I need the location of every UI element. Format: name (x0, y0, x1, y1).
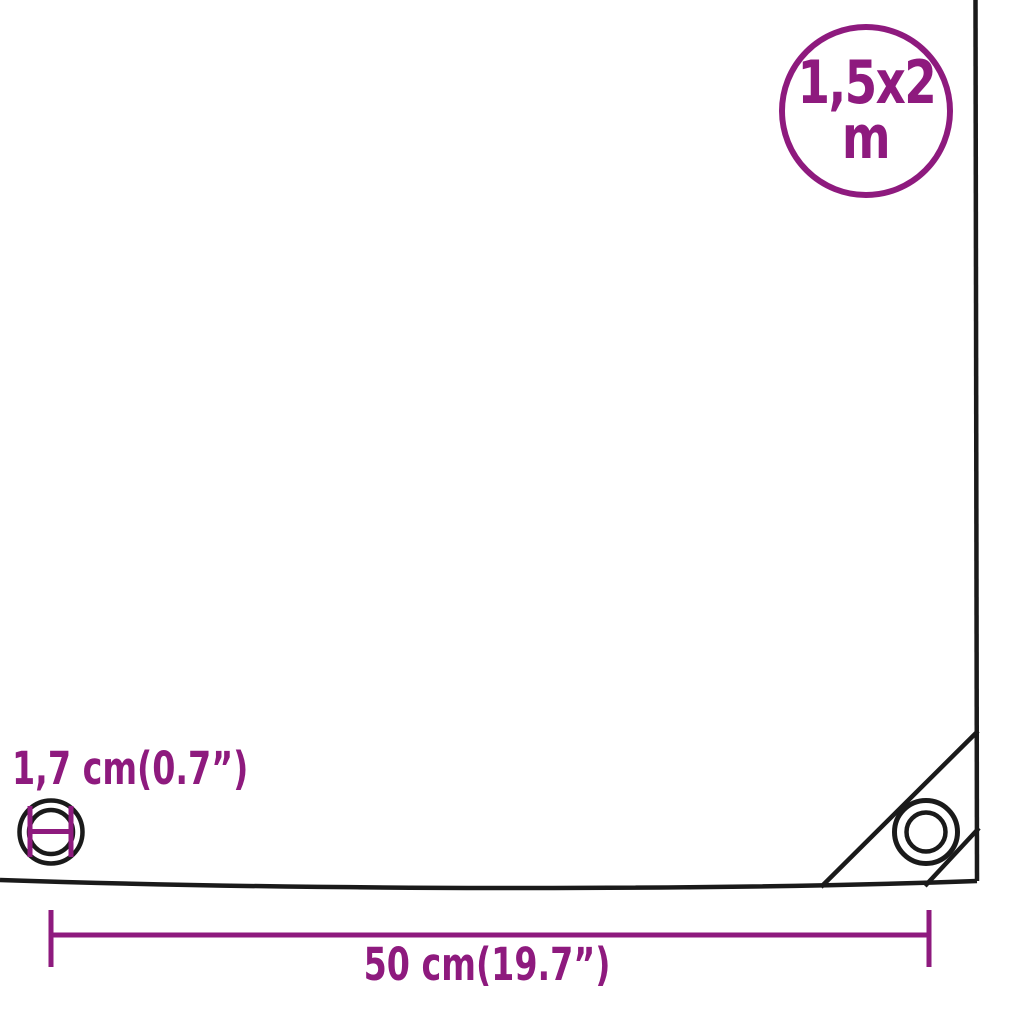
tarpaulin-right-edge (976, 0, 978, 881)
product-dimension-diagram: 1,5x2 m 1,7 cm(0.7”) 50 cm(19.7”) (0, 0, 1024, 1024)
size-badge: 1,5x2 m (779, 24, 953, 198)
corner-seam-long-line (821, 731, 978, 887)
grommet-icon (895, 801, 958, 864)
size-badge-unit: m (842, 111, 891, 166)
tarpaulin-bottom-edge (0, 880, 977, 888)
eyelet-diameter-label: 1,7 cm(0.7”) (12, 746, 248, 791)
edge-distance-label: 50 cm(19.7”) (265, 942, 709, 987)
grommet-outer-ring (895, 801, 958, 864)
eyelet-icon (20, 801, 83, 864)
